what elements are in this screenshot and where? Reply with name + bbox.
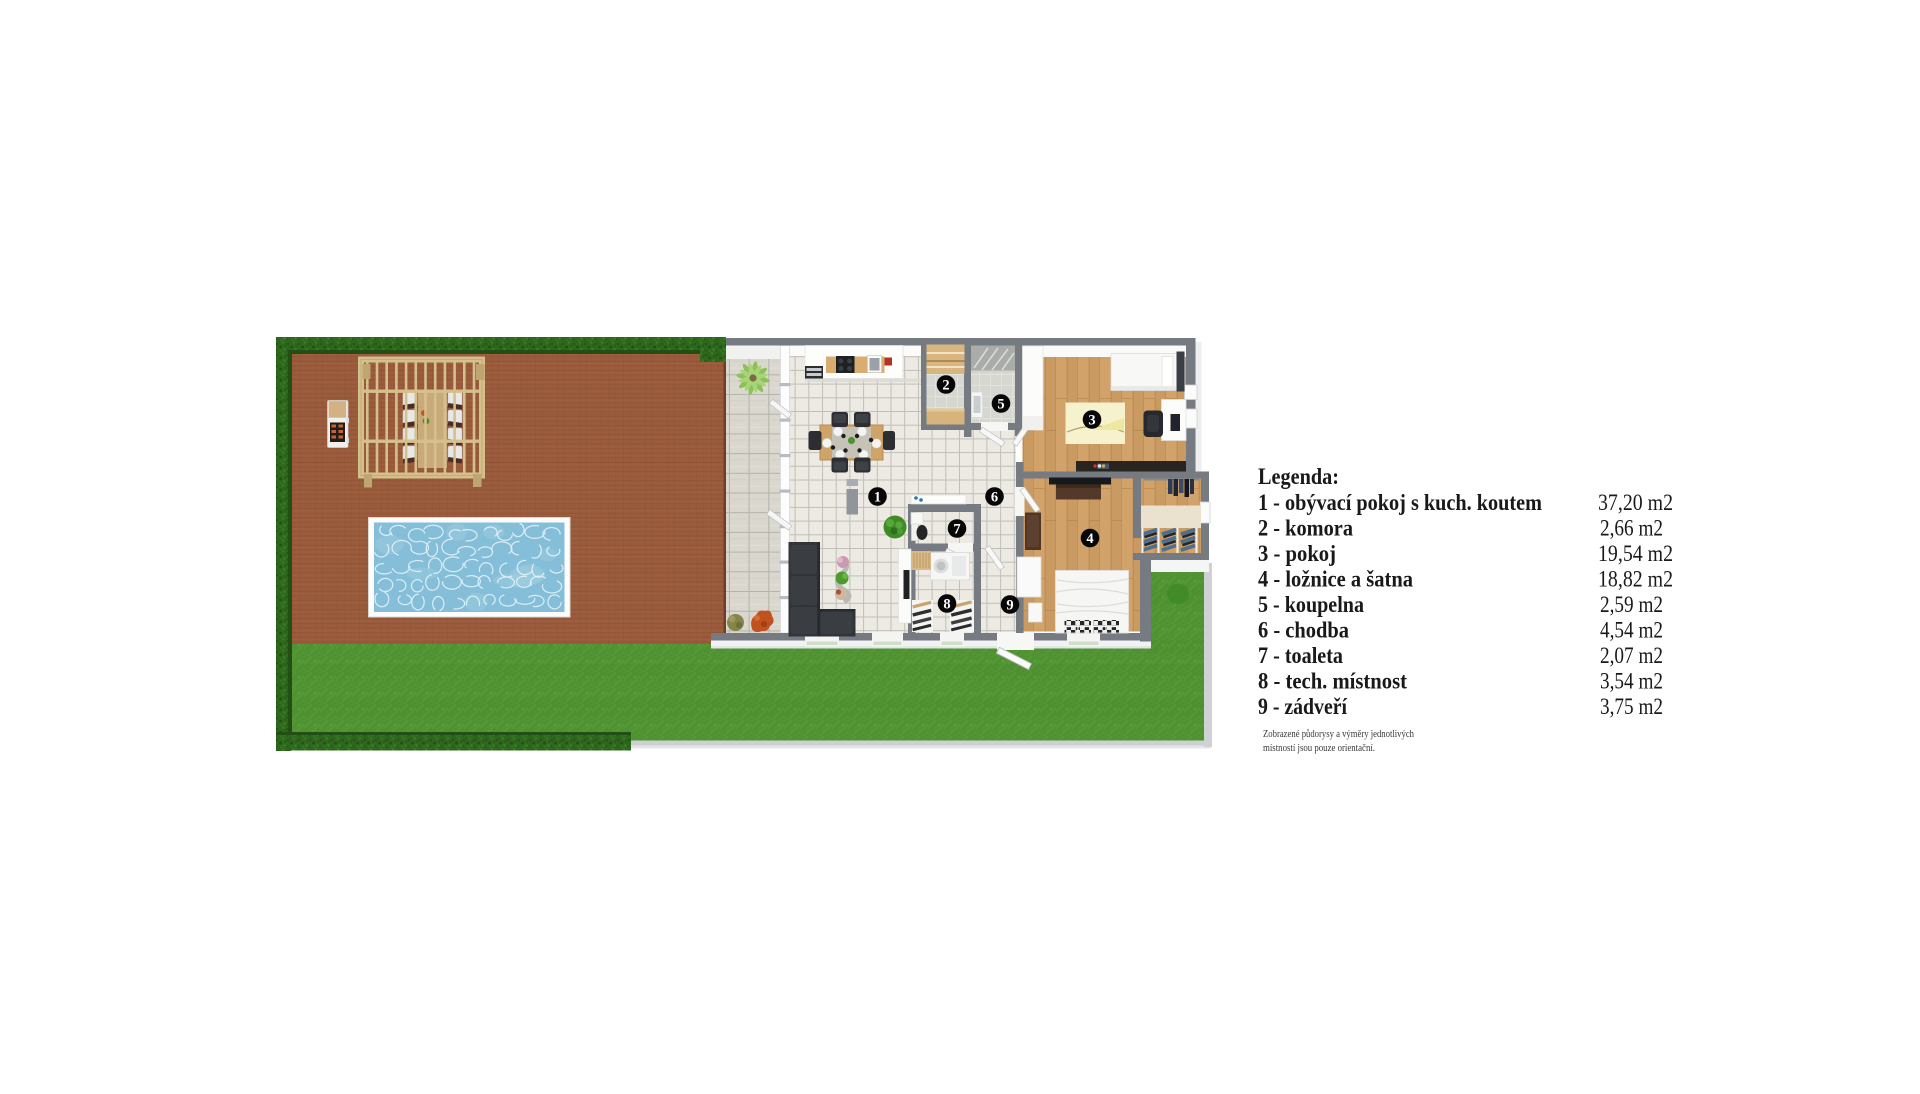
svg-text:5: 5 <box>997 397 1004 413</box>
svg-text:5 - koupelna: 5 - koupelna <box>1258 592 1364 618</box>
svg-text:6 - chodba: 6 - chodba <box>1258 618 1349 644</box>
svg-text:6: 6 <box>991 490 998 506</box>
svg-text:8: 8 <box>943 597 950 613</box>
svg-text:2: 2 <box>942 378 949 394</box>
svg-text:37,20 m2: 37,20 m2 <box>1598 490 1673 516</box>
svg-text:místností jsou pouze orientačn: místností jsou pouze orientační. <box>1263 743 1375 754</box>
svg-text:7: 7 <box>953 522 960 538</box>
svg-text:2,59 m2: 2,59 m2 <box>1600 592 1663 618</box>
svg-text:4,54 m2: 4,54 m2 <box>1600 618 1663 644</box>
svg-text:2,07 m2: 2,07 m2 <box>1600 643 1663 669</box>
svg-text:4 - ložnice a šatna: 4 - ložnice a šatna <box>1258 567 1413 593</box>
svg-text:2 - komora: 2 - komora <box>1258 516 1353 542</box>
svg-text:3 - pokoj: 3 - pokoj <box>1258 541 1336 567</box>
svg-text:4: 4 <box>1086 531 1093 547</box>
svg-text:Legenda:: Legenda: <box>1258 464 1339 490</box>
svg-text:7 - toaleta: 7 - toaleta <box>1258 643 1343 669</box>
svg-text:8 - tech. místnost: 8 - tech. místnost <box>1258 669 1407 695</box>
svg-text:9 - zádveří: 9 - zádveří <box>1258 694 1347 720</box>
svg-text:1 - obývací pokoj s kuch. kout: 1 - obývací pokoj s kuch. koutem <box>1258 490 1542 516</box>
svg-text:9: 9 <box>1006 598 1013 614</box>
svg-text:1: 1 <box>874 490 881 506</box>
svg-text:19,54 m2: 19,54 m2 <box>1598 541 1673 567</box>
svg-text:Zobrazené půdorysy a výměry je: Zobrazené půdorysy a výměry jednotlivých <box>1263 729 1414 740</box>
svg-text:18,82 m2: 18,82 m2 <box>1598 567 1673 593</box>
svg-text:3: 3 <box>1088 413 1095 429</box>
svg-text:2,66 m2: 2,66 m2 <box>1600 516 1663 542</box>
svg-text:3,54 m2: 3,54 m2 <box>1600 669 1663 695</box>
svg-text:3,75 m2: 3,75 m2 <box>1600 694 1663 720</box>
